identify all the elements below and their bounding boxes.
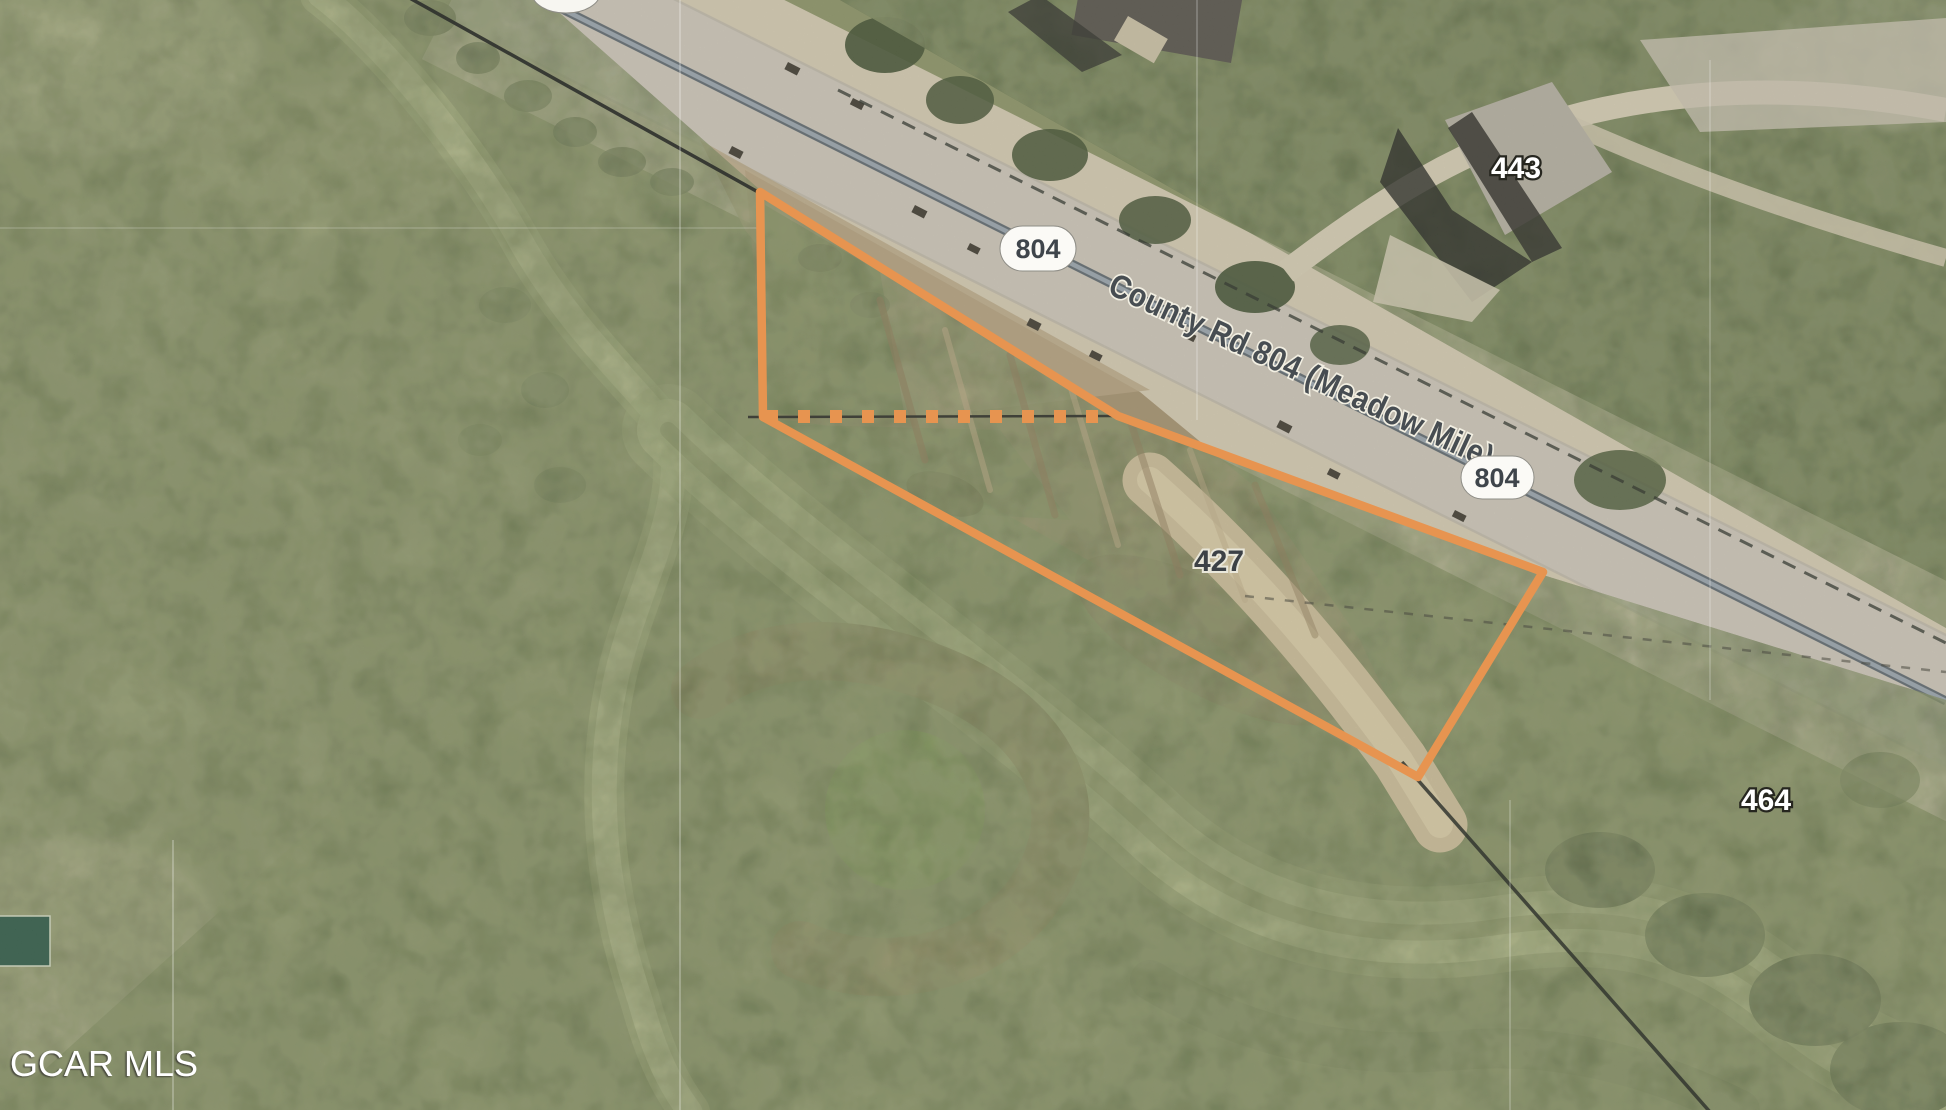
route-shield-se-label: 804 [1474, 463, 1519, 493]
grain-overlay [0, 0, 1946, 1110]
parcel-label-443: 443 [1491, 152, 1541, 185]
route-shield-se: 804 [1461, 456, 1534, 499]
parcel-label-464: 464 [1741, 784, 1791, 817]
aerial-parcel-map: 804 County Rd 804 (Meadow Mile) 804 443 … [0, 0, 1946, 1110]
parcel-label-427: 427 [1194, 545, 1244, 578]
route-shield-nw-label: 804 [1015, 234, 1060, 264]
watermark-gcar-mls: GCAR MLS [10, 1043, 198, 1084]
route-shield-nw: 804 [1000, 226, 1076, 271]
